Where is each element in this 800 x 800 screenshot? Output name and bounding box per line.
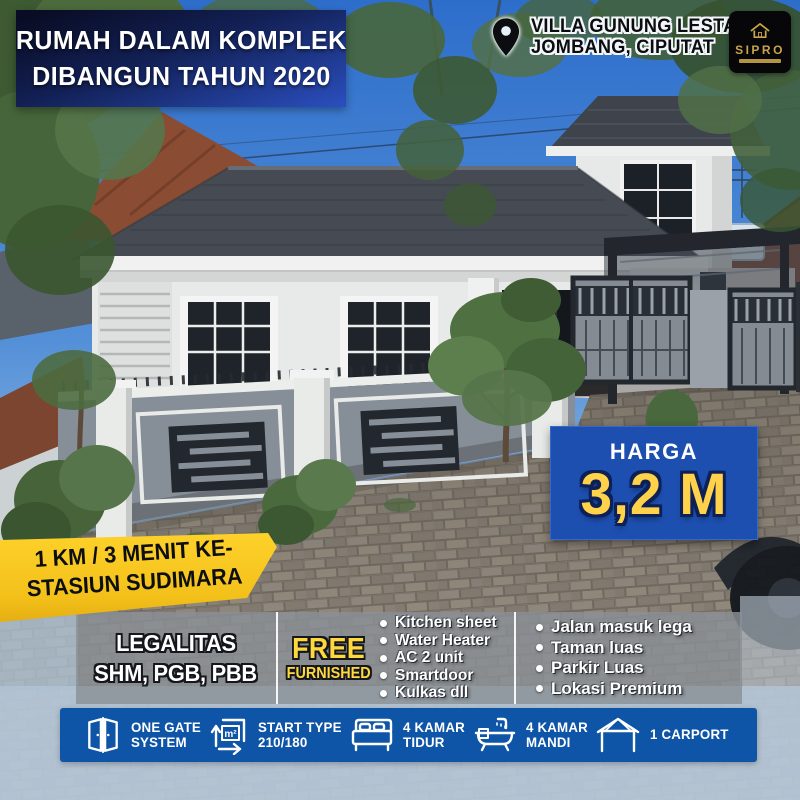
door-icon (84, 715, 122, 755)
list-item: Parkir Luas (536, 658, 692, 679)
area-icon: m² (209, 715, 249, 755)
price-value: 3,2 M (580, 464, 727, 526)
logo-tagline-bar (739, 59, 781, 63)
bed-icon (350, 715, 394, 755)
free-furnished-badge: FREE FURNISHED (278, 634, 380, 683)
sipro-logo: SIPRO (729, 11, 791, 73)
gate (573, 278, 800, 392)
spec-kamar-mandi: 4 KAMAR MANDI (473, 715, 591, 755)
legalitas-value: SHM, PGB, PBB (95, 660, 258, 687)
list-item: Water Heater (380, 632, 497, 650)
features-panel: LEGALITAS SHM, PGB, PBB FREE FURNISHED K… (76, 612, 742, 704)
list-item: Lokasi Premium (536, 679, 692, 700)
spec-kamar-tidur: 4 KAMAR TIDUR (350, 715, 468, 755)
bottom-specs-bar: ONE GATE SYSTEM m² START TYPE 210/180 (60, 708, 757, 762)
bath-icon (473, 715, 517, 755)
furnished-list: Kitchen sheet Water Heater AC 2 unit Sma… (380, 614, 497, 702)
legalitas-title: LEGALITAS (116, 630, 236, 657)
free-furnished-column: FREE FURNISHED Kitchen sheet Water Heate… (278, 612, 514, 704)
spec-one-gate-system: ONE GATE SYSTEM (84, 715, 205, 755)
legalitas-column: LEGALITAS SHM, PGB, PBB (76, 612, 276, 704)
highlights-list: Jalan masuk lega Taman luas Parkir Luas … (536, 617, 692, 699)
price-label: HARGA (610, 440, 698, 464)
spec-carport: 1 CARPORT (595, 715, 733, 755)
svg-text:m²: m² (224, 729, 237, 740)
list-item: AC 2 unit (380, 649, 497, 667)
title-line-1: RUMAH DALAM KOMPLEK (16, 25, 347, 56)
price-box: HARGA 3,2 M (550, 426, 758, 540)
location-line-1: VILLA GUNUNG LESTARI (531, 16, 755, 37)
furnished-line: FURNISHED (287, 665, 371, 683)
list-item: Kitchen sheet (380, 614, 497, 632)
property-listing-poster: RUMAH DALAM KOMPLEK DIBANGUN TAHUN 2020 … (0, 0, 800, 800)
list-item: Jalan masuk lega (536, 617, 692, 638)
title-line-2: DIBANGUN TAHUN 2020 (32, 61, 331, 92)
location-line-2: JOMBANG, CIPUTAT (531, 37, 755, 58)
free-line: FREE (293, 634, 366, 664)
title-banner: RUMAH DALAM KOMPLEK DIBANGUN TAHUN 2020 (16, 10, 346, 107)
list-item: Smartdoor (380, 667, 497, 685)
logo-house-icon (747, 22, 773, 41)
list-item: Kulkas dll (380, 684, 497, 702)
logo-text: SIPRO (735, 43, 785, 57)
list-item: Taman luas (536, 638, 692, 659)
spec-start-type: m² START TYPE 210/180 (209, 715, 346, 755)
carport-icon (595, 715, 641, 755)
location-pin-icon (492, 17, 520, 57)
highlights-column: Jalan masuk lega Taman luas Parkir Luas … (516, 612, 742, 704)
